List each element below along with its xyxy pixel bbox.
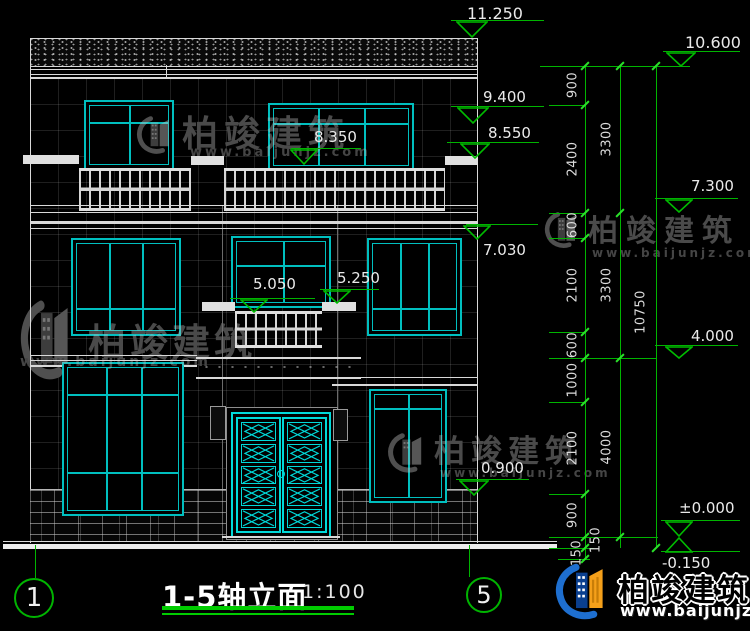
axis-bubble-1: 1 [14, 578, 54, 618]
dimension-extension-line [549, 402, 585, 403]
window-2f-right [367, 238, 462, 336]
watermark-left: 柏竣建筑 www.baijunjz.com [18, 296, 278, 391]
dimension-value: 600 [566, 212, 581, 238]
window-transom [67, 472, 179, 474]
door-panel [287, 422, 322, 441]
floor-slab-line [30, 205, 477, 206]
watermark-logo-icon [135, 108, 177, 164]
elevation-triangle-icon [456, 21, 488, 38]
dimension-value: 4000 [600, 429, 615, 464]
slab-band-line [332, 377, 478, 378]
elevation-drawing-canvas: 柏竣建筑 www.baijunjz.com 柏竣建筑 www.baijunjz.… [0, 0, 750, 631]
door-panel [241, 422, 276, 441]
axis-number: 5 [476, 581, 491, 609]
watermark-logo-icon [386, 424, 430, 484]
elevation-value: ±0.000 [679, 499, 735, 517]
floor-slab-line [30, 228, 477, 229]
elevation-triangle-icon [665, 346, 693, 359]
cornice-line [30, 69, 477, 70]
watermark-brand: 柏竣建筑 [588, 206, 740, 250]
elevation-value: 8.550 [488, 124, 531, 142]
elevation-value: 10.600 [685, 33, 741, 52]
window-mullion [428, 243, 430, 331]
elevation-triangle-icon [459, 480, 489, 496]
watermark-logo-icon [18, 298, 80, 386]
dimension-chain-line [585, 66, 586, 559]
dimension-extension-line [549, 105, 585, 106]
dimension-value: 1000 [566, 362, 581, 397]
door-panel [241, 444, 276, 463]
dimension-value: 3300 [600, 267, 615, 302]
elevation-value: 5.250 [337, 269, 380, 287]
dimension-value: 600 [566, 332, 581, 358]
roof-parapet-band [30, 38, 478, 67]
title-underline [162, 606, 354, 610]
watermark-site: www.baijunjz.com [20, 354, 211, 370]
watermark-site: www.baijunjz.com [592, 246, 750, 260]
slab-band-line [332, 384, 478, 386]
wall-lamp [333, 409, 348, 441]
dimension-tick [651, 543, 660, 552]
window-transom [236, 265, 326, 267]
elevation-triangle-icon [323, 290, 351, 304]
dimension-value: 900 [566, 502, 581, 528]
wall-lamp [210, 406, 226, 440]
door-handle [277, 470, 285, 478]
elevation-triangle-icon [665, 199, 693, 213]
axis-number: 1 [26, 583, 43, 613]
elevation-triangle-icon [457, 107, 489, 124]
elevation-value: 0.900 [481, 459, 524, 477]
window-mullion [283, 241, 285, 303]
ground-line [3, 544, 557, 549]
cornice-line [30, 77, 477, 79]
door-panel [241, 487, 276, 506]
door-panel [287, 509, 322, 528]
axis-leader-line [469, 545, 470, 577]
cornice-line [30, 74, 477, 75]
dimension-extension-line [549, 494, 585, 495]
axis-leader-line [35, 545, 36, 578]
dimension-extension-line [549, 537, 658, 538]
door-sill-line [222, 536, 340, 538]
elevation-triangle-icon [463, 225, 491, 240]
elevation-triangle-icon [460, 143, 490, 159]
elevation-triangle-icon [666, 52, 696, 67]
dimension-value: 3300 [600, 121, 615, 156]
brand-logo-icon [553, 562, 615, 624]
brand-site: www.baijunjz.com [620, 601, 750, 620]
ground-line-thin [3, 541, 557, 542]
elevation-value: 5.050 [253, 275, 296, 293]
door-panel [241, 509, 276, 528]
dimension-chain-line [620, 66, 621, 548]
elevation-value: 9.400 [483, 88, 526, 106]
door-leaf-right [282, 417, 327, 533]
window-mullion [129, 105, 131, 165]
elevation-triangle-icon [290, 149, 318, 165]
dimension-chain-line [656, 66, 657, 548]
door-panel [287, 466, 322, 485]
door-panel [287, 444, 322, 463]
dimension-extension-line [540, 66, 690, 67]
title-underline [162, 613, 354, 615]
elevation-triangle-icon [240, 299, 268, 313]
window-transom [67, 394, 179, 396]
dimension-value: 150 [589, 527, 604, 553]
cornice-joint-line [166, 65, 167, 78]
window-mullion [400, 243, 402, 331]
elevation-value: 7.300 [691, 177, 734, 195]
door-panel [287, 487, 322, 506]
dimension-value: 900 [566, 72, 581, 98]
drawing-scale: 1:100 [302, 581, 367, 603]
building-left-edge [30, 38, 31, 543]
dimension-value: 2100 [566, 430, 581, 465]
elevation-line [661, 551, 740, 552]
parapet-cap [23, 155, 79, 164]
elevation-triangle-icon [665, 521, 693, 537]
elevation-value: 4.000 [691, 327, 734, 345]
dimension-value: 10750 [634, 290, 649, 334]
floor-slab-line [30, 212, 477, 213]
dimension-value: 2400 [566, 141, 581, 176]
door-leaf-left [236, 417, 281, 533]
dimension-value: 2100 [566, 267, 581, 302]
axis-bubble-5: 5 [466, 577, 502, 613]
door-panel [241, 466, 276, 485]
elevation-value: 7.030 [483, 241, 526, 259]
elevation-value: 8.350 [314, 128, 357, 146]
floor-slab-line [30, 221, 477, 224]
window-transom [372, 308, 457, 310]
window-transom [374, 408, 442, 410]
